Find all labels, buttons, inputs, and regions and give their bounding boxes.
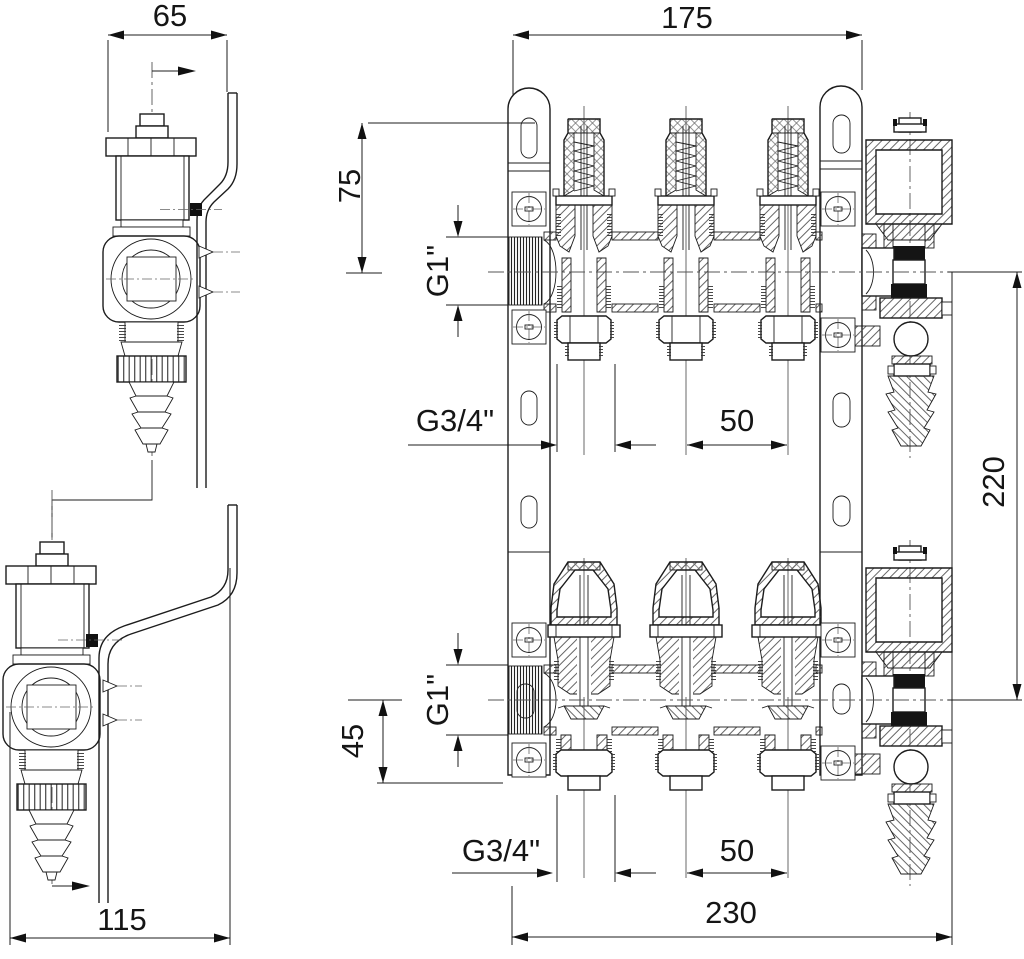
dim-label: 220 [976,456,1011,508]
manifold-assembly-drawing: 65 175 75 G1" [0,0,1024,959]
dim-label: 50 [720,403,754,438]
dim-return-outlet-thread: G3/4" [452,795,656,882]
bracket-profile [99,505,228,903]
screw-side-icon [103,680,117,692]
slot-hole [521,391,537,425]
dim-side-top-depth: 65 [108,0,227,132]
flow-direction-arrow-icon [72,882,90,891]
dim-label: G3/4" [462,833,540,868]
air-vent-and-drain [852,112,952,458]
return-valve-tower-1 [548,558,620,878]
return-valve-tower-3 [752,558,824,878]
inlet-thread-g1 [509,237,542,305]
dim-front-top-span: 175 [513,0,862,96]
slot-hole [833,115,850,153]
supply-valve-tower-2 [655,106,717,455]
dim-axis-to-axis: 220 [948,272,1022,945]
view-connector-line [52,460,152,538]
supply-valve-tower-3 [757,106,819,455]
dim-label: 50 [720,833,754,868]
bracket-marker [86,634,98,647]
screw-side-icon [103,714,117,726]
return-valve-tower-2 [650,558,722,878]
dim-label: 45 [335,724,370,758]
technical-drawing-canvas: 65 175 75 G1" [0,0,1024,959]
dim-return-outlet-pitch: 50 [687,833,787,878]
slot-hole [833,496,850,526]
dim-label: 175 [661,0,713,35]
dim-label: G1" [420,674,455,726]
dim-label: G1" [420,245,455,297]
return-valve-side [3,490,100,888]
supply-valve-side [103,62,200,460]
slot-hole [521,118,537,158]
dim-supply-outlet-pitch: 50 [687,403,787,450]
slot-hole [833,684,850,714]
right-bracket [820,86,862,775]
supply-valve-tower-1 [553,106,615,455]
slot-hole [833,393,850,427]
dim-label: G3/4" [416,403,494,438]
dim-label: 75 [332,169,367,203]
dim-front-bottom-width: 230 [512,886,952,945]
dim-supply-inlet-thread: G1" [420,205,508,337]
dim-label: 115 [97,902,146,937]
slot-hole [521,496,537,528]
dim-label: 65 [153,0,187,33]
flow-direction-arrow-icon [178,67,196,76]
view-side-supply [103,62,240,488]
air-vent-and-drain [852,540,952,886]
dim-label: 230 [705,895,757,930]
view-side-return [3,490,237,903]
